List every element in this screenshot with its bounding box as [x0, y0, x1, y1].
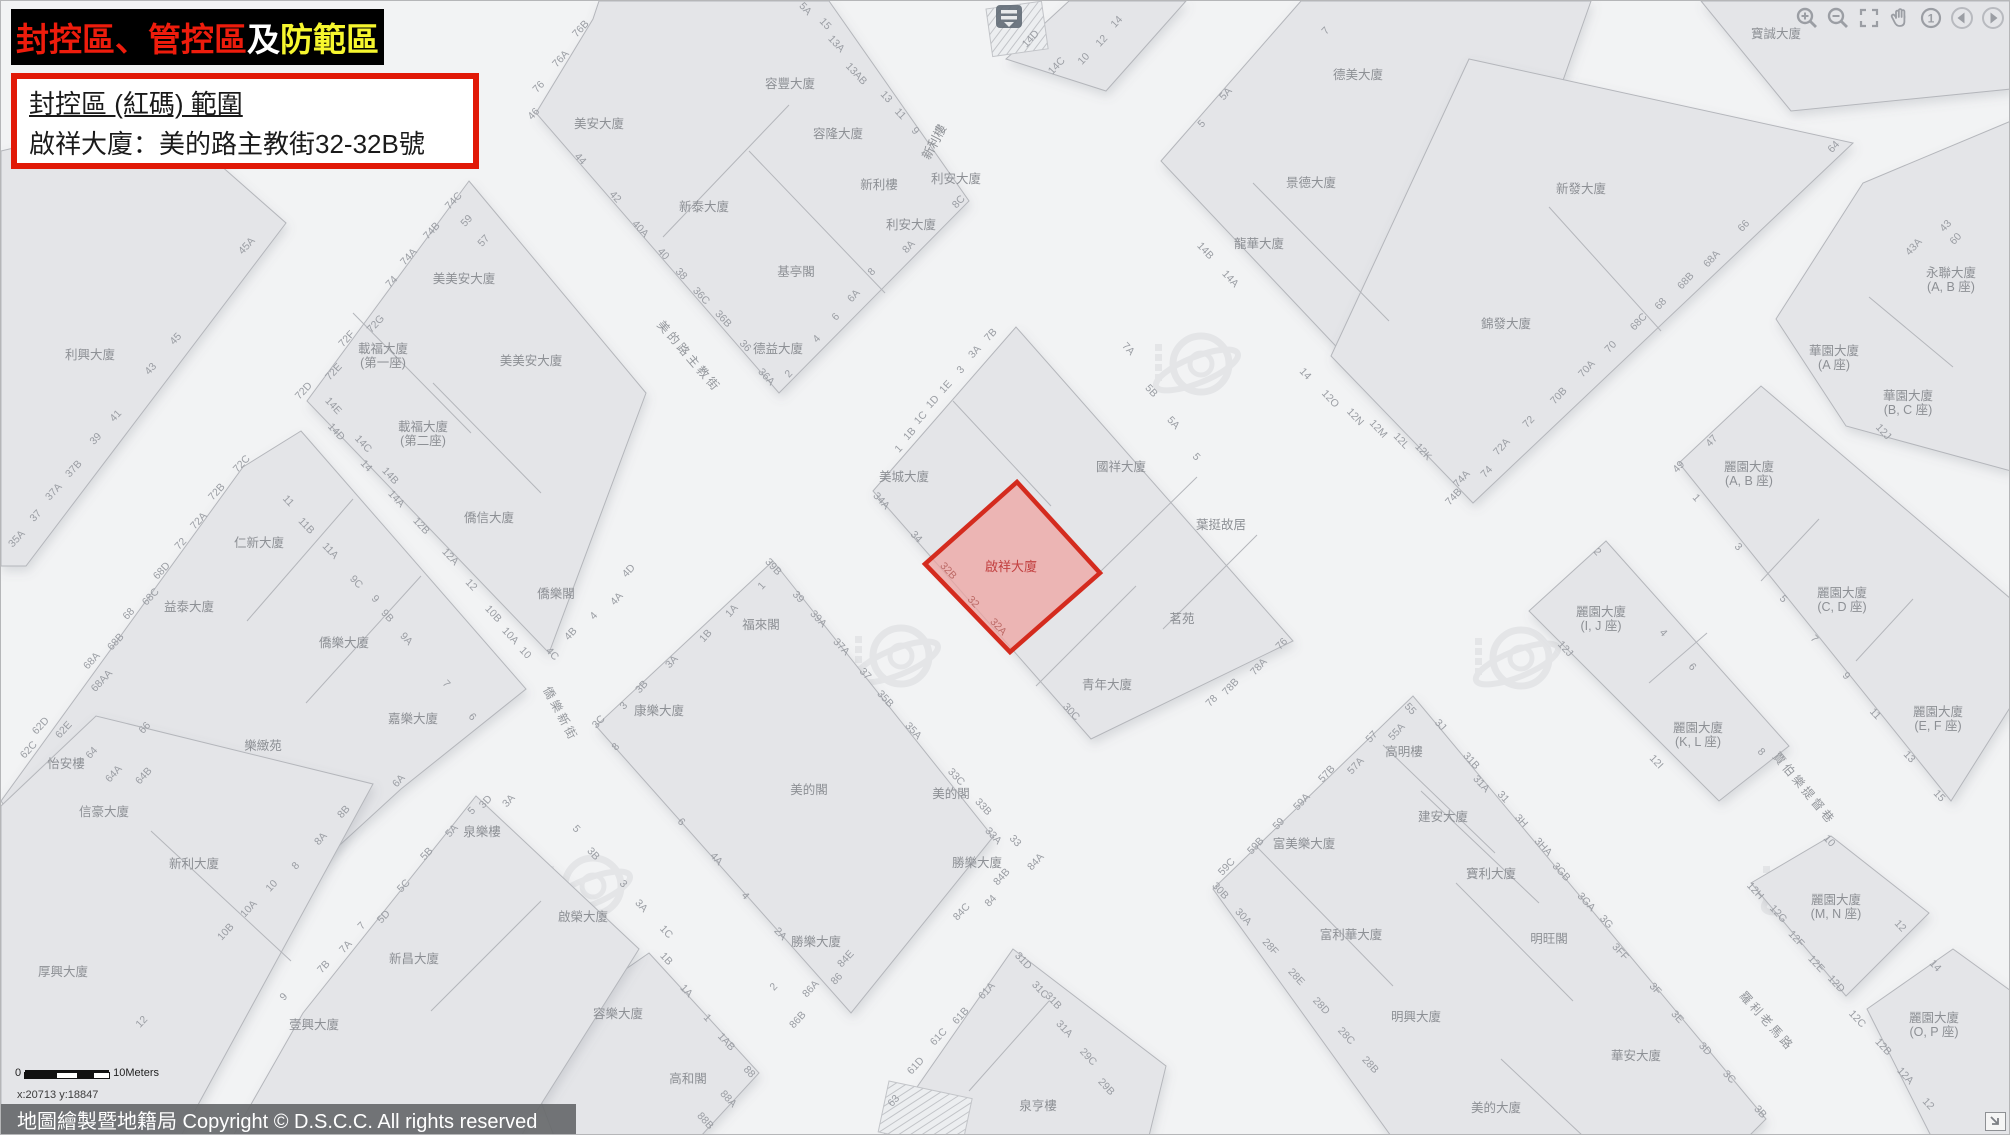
diagonal-arrow-icon: [1989, 1115, 2002, 1128]
pan-hand-icon[interactable]: [1888, 6, 1912, 30]
house-number-label: 14: [1297, 366, 1314, 383]
zoom-in-icon[interactable]: [1795, 6, 1819, 30]
city-block: [1867, 949, 2010, 1135]
building-label: 新昌大廈: [389, 951, 439, 966]
building-label: 茗苑: [1169, 612, 1195, 626]
house-number-label: 84A: [1025, 851, 1047, 873]
building-label: 福來閣: [742, 617, 780, 632]
building-label: 新利樓: [860, 177, 898, 192]
house-number-label: 7: [355, 920, 368, 933]
building-label: 富美樂大廈: [1273, 836, 1336, 851]
building-label: 新利大廈: [169, 856, 219, 871]
building-label: 美的閣: [790, 782, 828, 797]
house-number-label: 1E: [937, 378, 955, 396]
zoom-out-icon[interactable]: [1826, 6, 1850, 30]
house-number-label: 3: [954, 364, 967, 377]
title-red-zones: 封控區、管控區: [16, 13, 247, 61]
house-number-label: 7B: [982, 326, 1000, 344]
building-label: 葉挺故居: [1196, 517, 1246, 532]
building-label: 僑樂大廈: [319, 635, 369, 650]
building-label: 龍華大廈: [1234, 236, 1284, 251]
building-label: 錦發大廈: [1481, 316, 1531, 331]
house-number-label: 12M: [1367, 417, 1390, 440]
overview-corner-button[interactable]: [1985, 1112, 2006, 1131]
house-number-label: 1C: [657, 923, 675, 941]
building-label: 僑信大廈: [464, 510, 514, 525]
building-label: 華園大廈(B, C 座): [1883, 388, 1933, 417]
building-label: 利安大廈: [886, 217, 936, 232]
building-label: 寶利大廈: [1466, 866, 1516, 881]
building-label: 國祥大廈: [1096, 459, 1146, 474]
house-number-label: 1: [892, 443, 905, 456]
lockdown-address-line: 啟祥大廈：美的路主教街32-32B號: [29, 124, 461, 164]
house-number-label: 5A: [1164, 414, 1182, 432]
building-label: 勝樂大廈: [791, 934, 841, 949]
scale-bar: 0 10Meters: [15, 1067, 159, 1079]
map-canvas[interactable]: 啟祥大廈 利興大廈美美安大廈美美安大廈載福大廈(第一座)載福大廈(第二座)僑信大…: [1, 1, 2010, 1135]
building-label: 仁新大廈: [234, 535, 284, 550]
building-label: 高明樓: [1385, 744, 1423, 759]
next-extent-icon[interactable]: [1981, 6, 2005, 30]
house-number-label: 3A: [632, 897, 650, 915]
building-label: 基亭閣: [777, 264, 815, 279]
house-number-label: 4A: [608, 590, 626, 608]
building-label: 勝樂大廈: [952, 855, 1002, 870]
building-label: 麗園大廈(C, D 座): [1817, 585, 1867, 614]
building-label: 美美安大廈: [500, 353, 563, 368]
house-number-label: 86B: [787, 1009, 809, 1031]
building-label: 麗園大廈(E, F 座): [1913, 704, 1963, 733]
house-number-label: 61D: [905, 1055, 927, 1078]
building-label: 樂緻苑: [244, 738, 282, 753]
house-number-label: 9: [277, 991, 290, 1004]
house-number-label: 12O: [1319, 388, 1341, 411]
house-number-label: 5: [1190, 451, 1203, 464]
house-number-label: 33: [1007, 833, 1024, 850]
house-number-label: 1D: [924, 393, 942, 411]
street-name-label: 羅利老馬路: [1737, 988, 1798, 1054]
building-label: 益泰大廈: [164, 599, 214, 614]
building-label: 壹興大廈: [289, 1017, 339, 1032]
house-number-label: 84C: [951, 901, 973, 924]
house-number-label: 2: [767, 981, 780, 994]
previous-extent-icon[interactable]: [1950, 6, 1974, 30]
building-label: 永聯大廈(A, B 座): [1926, 265, 1976, 294]
house-number-label: 7: [1808, 633, 1821, 646]
house-number-label: 1B: [901, 425, 919, 443]
street-name-label: 美的路主教街: [654, 317, 724, 395]
scale-end-label: 10Meters: [113, 1067, 159, 1079]
svg-text:1: 1: [1928, 12, 1935, 26]
building-label: 利安大廈: [931, 171, 981, 186]
building-label: 明旺閣: [1530, 932, 1568, 946]
building-label: 僑樂閣: [537, 586, 575, 601]
house-number-label: 12C: [1846, 1008, 1868, 1031]
watermark-emblem: [1471, 630, 1562, 692]
building-label: 寶誠大廈: [1751, 26, 1801, 41]
building-label: 德美大廈: [1333, 67, 1383, 82]
house-number-label: 5: [1777, 593, 1790, 606]
house-number-label: 10: [517, 645, 534, 662]
lockdown-building-label: 啟祥大廈: [985, 559, 1037, 574]
initial-extent-icon[interactable]: 1: [1919, 6, 1943, 30]
house-number-label: 12N: [1344, 406, 1366, 428]
building-label: 容豐大廈: [765, 76, 815, 91]
building-label: 富利華大廈: [1320, 927, 1383, 942]
building-label: 利興大廈: [65, 347, 115, 362]
building-label: 啟榮大廈: [558, 909, 608, 924]
house-number-label: 78B: [1220, 676, 1242, 698]
street-name-label: 僑樂新街: [540, 684, 581, 744]
house-number-label: 62D: [30, 715, 52, 738]
building-label: 怡安樓: [47, 756, 85, 771]
building-label: 泉樂樓: [463, 824, 501, 839]
title-precaution-zone: 防範區: [280, 13, 379, 61]
building-label: 華安大廈: [1611, 1048, 1661, 1063]
building-label: 景德大廈: [1286, 175, 1336, 190]
building-label: 高和閣: [669, 1071, 707, 1086]
copyright-bar: 地圖繪製暨地籍局 Copyright © D.S.C.C. All rights…: [1, 1104, 576, 1135]
house-number-label: 84: [982, 892, 999, 909]
building-label: 厚興大廈: [38, 964, 88, 979]
house-number-label: 76: [530, 78, 547, 95]
house-number-label: 14A: [1219, 268, 1241, 290]
building-label: 載福大廈(第二座): [398, 419, 448, 448]
lockdown-info-box: 封控區 (紅碼) 範圍 啟祥大廈：美的路主教街32-32B號: [11, 73, 479, 169]
house-number-label: 4: [587, 610, 600, 623]
house-number-label: 3A: [966, 343, 984, 361]
house-number-label: 7B: [315, 958, 333, 976]
building-label: 容隆大廈: [813, 126, 863, 141]
house-number-label: 5: [570, 823, 583, 836]
cursor-coordinates: x:20713 y:18847: [17, 1089, 98, 1101]
building-label: 麗園大廈(K, L 座): [1673, 720, 1723, 749]
scale-bar-graphic: [24, 1072, 110, 1079]
building-label: 載福大廈(第一座): [358, 341, 408, 370]
building-label: 麗園大廈(O, P 座): [1909, 1010, 1959, 1039]
building-label: 美安大廈: [574, 116, 624, 131]
house-number-label: 1C: [912, 409, 930, 427]
house-number-label: 10A: [499, 625, 521, 647]
map-marker-icon: [996, 5, 1022, 28]
building-label: 建安大廈: [1418, 809, 1468, 824]
title-and: 及: [247, 13, 280, 61]
house-number-label: 12: [463, 577, 480, 594]
house-number-label: 4D: [620, 562, 638, 580]
building-label: 明興大廈: [1391, 1009, 1441, 1024]
page-title: 封控區、管控區及防範區: [11, 9, 384, 65]
building-label: 泉亨樓: [1019, 1098, 1057, 1113]
building-label: 德益大廈: [753, 341, 803, 356]
building-label: 新泰大廈: [679, 199, 729, 214]
house-number-label: 86A: [800, 978, 822, 1000]
lockdown-scope-heading: 封控區 (紅碼) 範圍: [29, 84, 461, 124]
house-number-label: 14B: [1194, 240, 1216, 262]
building-label: 麗園大廈(A, B 座): [1724, 459, 1774, 488]
building-label: 麗園大廈(I, J 座): [1576, 604, 1626, 633]
house-number-label: 7A: [1119, 340, 1137, 358]
building-label: 美城大廈: [879, 469, 929, 484]
building-label: 嘉樂大廈: [388, 711, 438, 726]
map-viewer: 啟祥大廈 利興大廈美美安大廈美美安大廈載福大廈(第一座)載福大廈(第二座)僑信大…: [0, 0, 2010, 1135]
house-number-label: 1: [1690, 492, 1703, 505]
building-label: 美的大廈: [1471, 1100, 1521, 1115]
building-label: 康樂大廈: [634, 703, 684, 718]
scale-start-label: 0: [15, 1067, 21, 1079]
building-label: 美美安大廈: [433, 271, 496, 286]
house-number-label: 3A: [500, 792, 518, 810]
house-number-label: 3: [1732, 541, 1745, 554]
street-name-label: 賈伯樂提督巷: [1770, 749, 1839, 828]
full-extent-icon[interactable]: [1857, 6, 1881, 30]
map-toolbar: 1: [1795, 6, 2005, 30]
watermark-emblem: [1151, 336, 1242, 398]
house-number-label: 4B: [562, 625, 580, 643]
house-number-label: 10B: [482, 603, 504, 625]
building-label: 青年大廈: [1082, 677, 1132, 692]
building-label: 美的閣: [932, 786, 970, 801]
building-label: 麗園大廈(M, N 座): [1811, 892, 1862, 921]
city-block: [536, 1, 969, 393]
building-label: 新發大廈: [1556, 181, 1606, 196]
house-number-label: 78: [1203, 692, 1220, 709]
house-number-label: 12I: [1647, 753, 1666, 772]
building-label: 信豪大廈: [79, 804, 129, 819]
building-label: 容樂大廈: [593, 1006, 643, 1021]
